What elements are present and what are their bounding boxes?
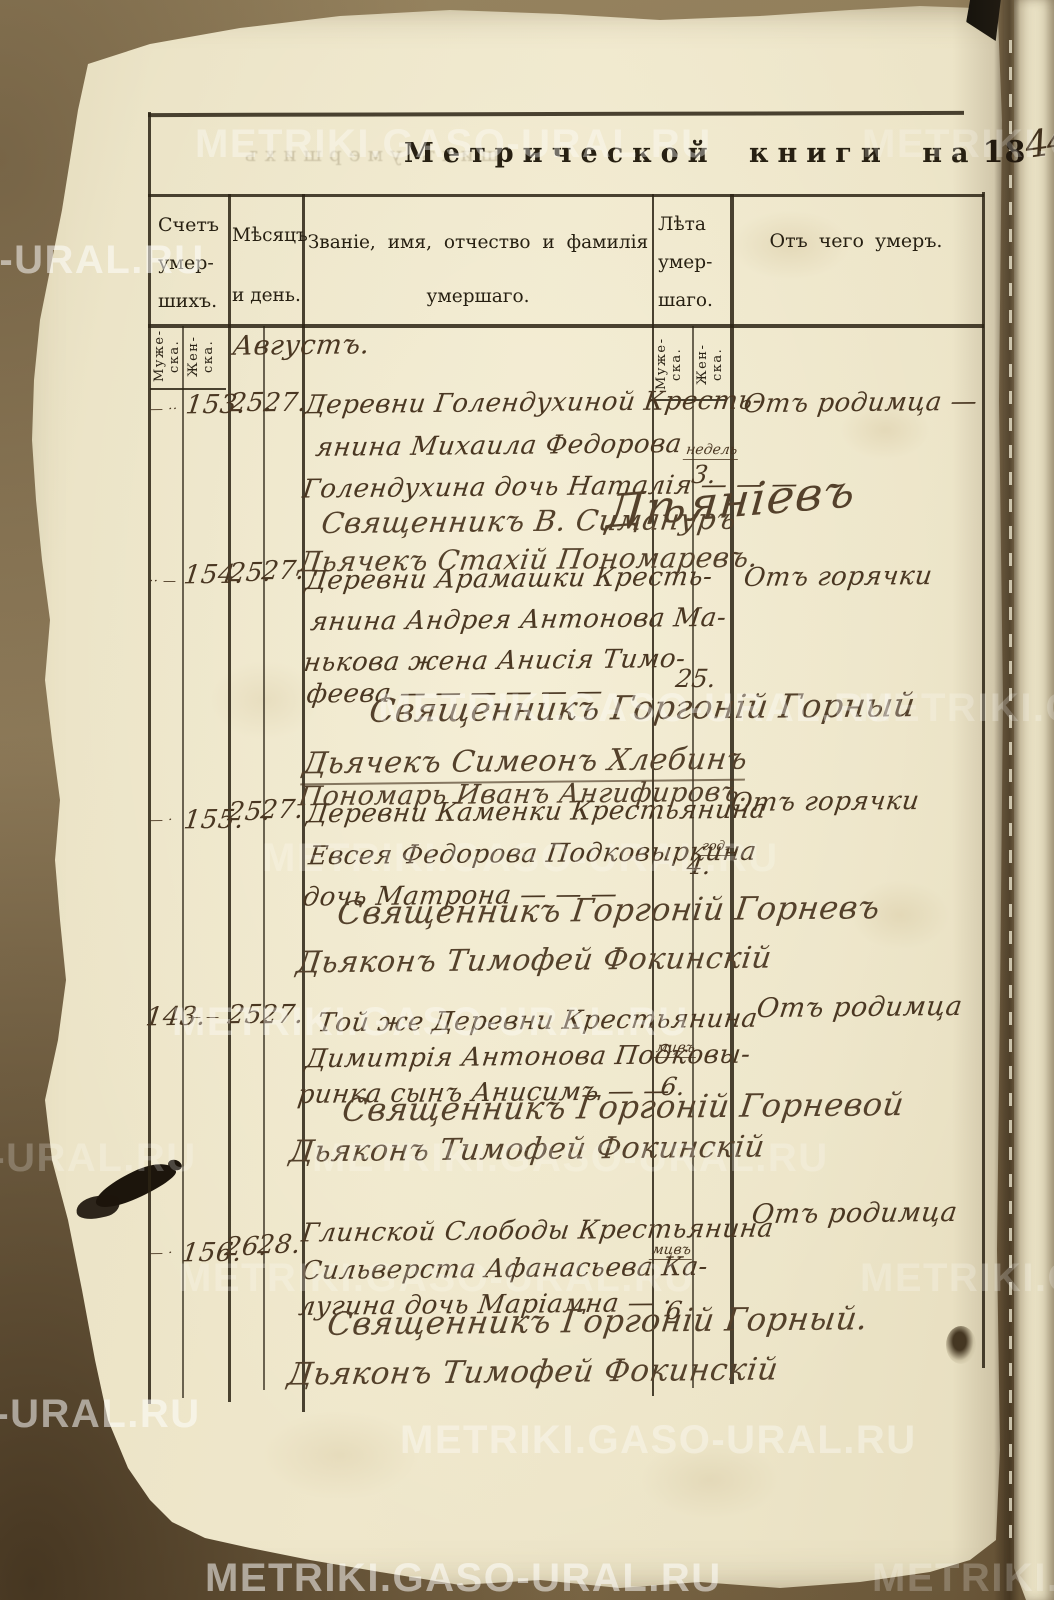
clergy-signature-line: Священникъ Горгоній Горный.: [325, 1299, 870, 1343]
entry-date-2: 27.: [260, 556, 307, 586]
entry-count-male: — ··: [149, 402, 178, 417]
entry-text-line: янина Андрея Антонова Ма-: [309, 603, 728, 637]
watermark-text: METRIKI.GASO-URAL.RU: [860, 1256, 1054, 1301]
entry-cause: Отъ родимца: [750, 1197, 960, 1230]
clergy-signature-line: Дьяконъ Тимофей Фокинскій: [285, 1351, 780, 1392]
watermark-text: METRIKI.GASO-URAL.RU: [862, 122, 1054, 167]
subheader-count-male: Муже-ска.: [152, 326, 182, 386]
entry-text-line: янина Михаила Федорова: [314, 429, 684, 463]
watermark-text: METRIKI.GASO-URAL.RU: [858, 686, 1054, 731]
table-border-left: [148, 112, 151, 1404]
entry-text-line: Глинской Слободы Крестьянина: [300, 1214, 776, 1249]
entry-date-2: 27.: [262, 388, 309, 418]
month-label: Августъ.: [231, 329, 372, 361]
clergy-signature-line: Священникъ Горгоній Горневой: [340, 1085, 906, 1129]
table-rule-header-top: [148, 194, 984, 197]
entry-text-line: Деревни Каменки Крестьянина: [305, 795, 768, 830]
column-header-name: Званіе, имя, отчество и фамилія умершаго…: [306, 216, 650, 324]
entry-count-male: ·· —: [148, 574, 177, 589]
watermark-text: METRIKI.GASO-URAL.RU: [312, 1136, 829, 1181]
entry-age-unit: недель: [683, 442, 741, 460]
column-header-age: Лѣта умер- шаго.: [658, 206, 713, 320]
watermark-text: METRIKI.GASO-URAL.RU: [378, 686, 895, 731]
scanned-page: шихъ умершихъ Метрической книги на 1844 …: [0, 0, 1054, 1600]
entry-age-value: 6.: [659, 1072, 687, 1101]
watermark-text: METRIKI.GASO-URAL.RU: [178, 1256, 695, 1301]
entry-count-male: — ·: [149, 1246, 174, 1261]
watermark-text: METRIKI.GASO-URAL.RU: [0, 1136, 197, 1181]
watermark-text: METRIKI.GASO-URAL.RU: [195, 122, 712, 167]
entry-cause: Отъ родимца: [755, 991, 965, 1024]
entry-cause: Отъ горячки: [729, 786, 921, 818]
watermark-text: METRIKI.GASO-URAL.RU: [0, 238, 205, 283]
column-header-month: Мѣсяцъ и день.: [232, 206, 308, 326]
table-divider-count: [182, 326, 184, 1398]
watermark-text: METRIKI.GASO-URAL.RU: [205, 1556, 722, 1600]
entry-age-value: 3.: [690, 460, 718, 489]
watermark-text: METRIKI.GASO-URAL.RU: [262, 836, 779, 881]
table-border-right: [982, 192, 985, 1368]
entry-text-line: Деревни Голендухиной Кресть-: [303, 386, 764, 421]
entry-text-line: Деревни Арамашки Кресть-: [304, 562, 715, 596]
watermark-text: METRIKI.GASO-URAL.RU: [872, 1556, 1054, 1600]
watermark-text: METRIKI.GASO-URAL.RU: [0, 1392, 201, 1437]
adjacent-page: [1014, 0, 1054, 1600]
clergy-signature-line: Дьяконъ Тимофей Фокинскій: [294, 941, 774, 981]
entry-text-line: нькова жена Анисія Тимо-: [302, 644, 688, 678]
stitch-thread: [1009, 40, 1012, 1540]
watermark-text: METRIKI.GASO-URAL.RU: [172, 1000, 689, 1045]
paper-hole: [946, 1326, 976, 1364]
entry-cause: Отъ родимца —: [742, 387, 979, 419]
entry-date-2: 27.: [259, 795, 306, 825]
watermark-text: METRIKI.GASO-URAL.RU: [400, 1418, 917, 1463]
clergy-signature-line: Священникъ Горгоній Горневъ: [335, 888, 882, 932]
entry-cause: Отъ горячки: [742, 561, 934, 593]
entry-count-male: — ·: [149, 813, 174, 828]
column-header-cause: Отъ чего умеръ.: [736, 222, 976, 260]
subheader-count-female: Жен-ска.: [186, 326, 224, 386]
